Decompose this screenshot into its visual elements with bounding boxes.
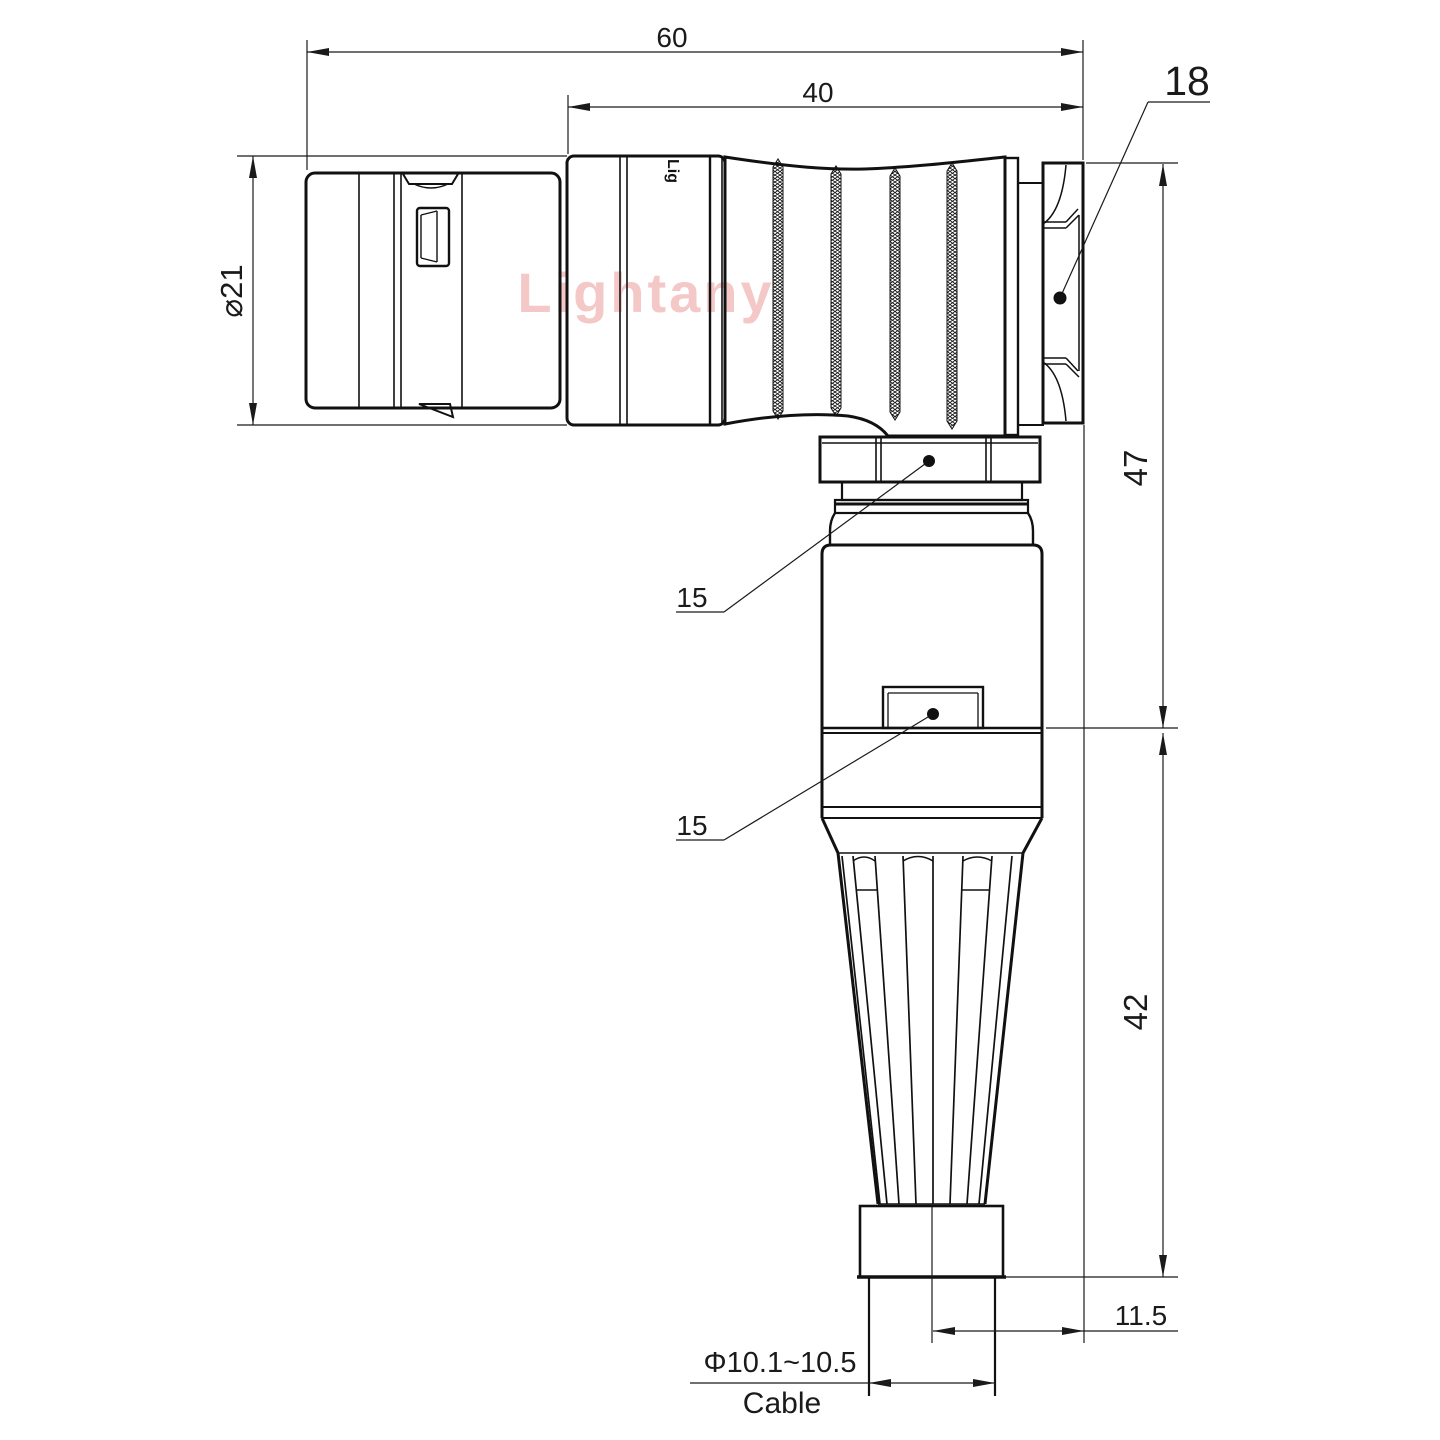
body-window — [883, 687, 983, 728]
leader-dot-coupling-nut — [923, 455, 935, 467]
knurl-band — [773, 159, 783, 419]
callout-coupling-nut: 15 — [676, 455, 935, 613]
knurl-band — [947, 163, 957, 429]
ring-lower — [835, 500, 1028, 513]
dim-overall-length: 60 — [307, 22, 1083, 170]
dim-label-11-5: 11.5 — [1115, 1300, 1167, 1331]
callout-label-15b: 15 — [676, 810, 707, 841]
dim-vertical-upper: 47 — [1046, 163, 1178, 728]
connector-technical-drawing: Lightany — [0, 0, 1440, 1440]
callout-label-15a: 15 — [676, 582, 707, 613]
main-body — [822, 545, 1042, 853]
watermark: Lightany — [517, 261, 774, 324]
drawing-page: Lightany — [0, 0, 1440, 1440]
neck-ring — [1005, 158, 1018, 435]
dim-label-cable: Cable — [743, 1387, 821, 1420]
dim-cable-diameter: Φ10.1~10.5 Cable — [690, 1347, 995, 1420]
strain-relief — [838, 853, 1023, 1204]
dim-label-cable-diameter: Φ10.1~10.5 — [704, 1347, 857, 1379]
spacer — [1018, 183, 1043, 425]
leader-dot-backshell — [927, 708, 939, 720]
dim-label-40: 40 — [802, 77, 833, 108]
watermark-text: Lightany — [517, 261, 774, 324]
elbow-body — [820, 437, 1042, 1396]
engraving-text: Lig — [664, 159, 681, 183]
dim-label-60: 60 — [656, 22, 687, 53]
knurl-band — [831, 166, 841, 416]
keying-window — [417, 208, 449, 266]
dim-vertical-lower: 42 — [1006, 733, 1178, 1277]
ring-upper — [842, 482, 1022, 500]
leader-dot-hex — [1054, 292, 1067, 305]
dim-front-length: 40 — [568, 77, 1083, 154]
dim-hex-callout: 18 — [1054, 58, 1211, 305]
flare — [830, 513, 835, 545]
knurl-band — [890, 168, 900, 420]
dim-label-42: 42 — [1117, 994, 1154, 1031]
dim-front-diameter: ⌀21 — [214, 156, 567, 425]
dim-label-d21: ⌀21 — [214, 264, 249, 317]
dim-label-47: 47 — [1117, 450, 1154, 487]
dim-label-18: 18 — [1164, 58, 1210, 104]
dimensions: 60 40 18 ⌀21 — [214, 22, 1210, 1420]
